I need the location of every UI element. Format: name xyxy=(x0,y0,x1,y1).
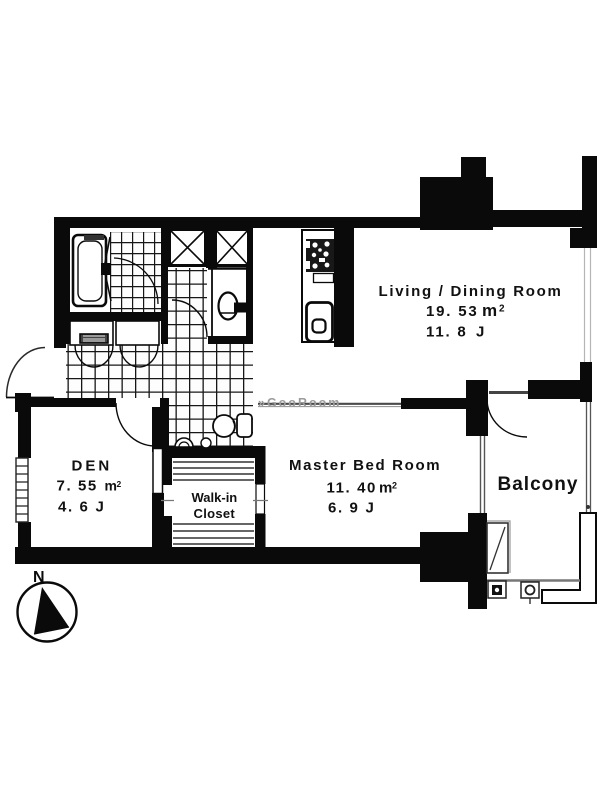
svg-text:Balcony: Balcony xyxy=(498,474,579,495)
svg-text:19. 53: 19. 53 xyxy=(426,303,479,320)
svg-text:Living / Dining Room: Living / Dining Room xyxy=(379,283,563,300)
svg-text:m: m xyxy=(379,479,392,496)
svg-text:Master Bed Room: Master Bed Room xyxy=(289,457,441,474)
svg-text:4. 6: 4. 6 xyxy=(58,499,89,516)
svg-text:J: J xyxy=(96,499,104,516)
svg-text:Walk-in: Walk-in xyxy=(192,490,238,505)
svg-text:DEN: DEN xyxy=(72,458,113,475)
svg-text:N: N xyxy=(33,569,45,586)
svg-text:11. 40: 11. 40 xyxy=(327,479,377,496)
svg-text:2: 2 xyxy=(499,304,505,315)
svg-text:6. 9: 6. 9 xyxy=(328,500,359,517)
svg-text:7. 55: 7. 55 xyxy=(57,478,98,495)
svg-text:»GooRoom: »GooRoom xyxy=(258,396,341,410)
svg-text:Closet: Closet xyxy=(194,506,236,521)
svg-text:2: 2 xyxy=(117,479,122,489)
svg-text:11. 8: 11. 8 xyxy=(426,324,468,341)
svg-text:J: J xyxy=(476,324,484,341)
svg-text:J: J xyxy=(366,500,374,517)
svg-text:2: 2 xyxy=(392,481,397,491)
svg-text:m: m xyxy=(105,478,117,494)
svg-text:m: m xyxy=(482,301,497,320)
